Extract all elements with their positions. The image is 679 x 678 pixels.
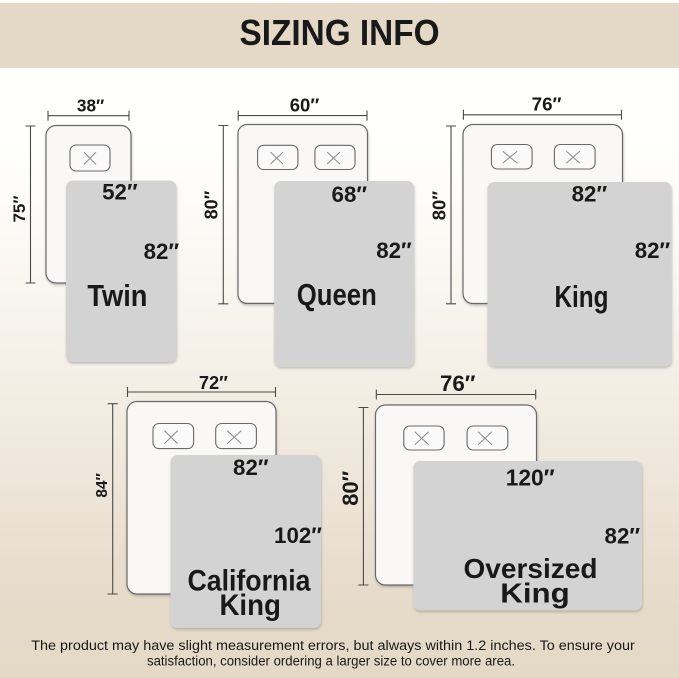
svg-text:84″: 84″	[94, 473, 111, 498]
svg-text:King: King	[555, 279, 609, 314]
svg-text:Queen: Queen	[297, 277, 377, 312]
svg-text:75″: 75″	[10, 195, 29, 222]
svg-text:72″: 72″	[199, 372, 228, 393]
svg-text:68″: 68″	[332, 182, 368, 207]
svg-text:SIZING INFO: SIZING INFO	[240, 12, 440, 53]
svg-text:82″: 82″	[572, 182, 608, 207]
svg-text:King: King	[500, 577, 570, 608]
svg-text:80″: 80″	[202, 190, 222, 219]
svg-text:satisfaction, consider orderin: satisfaction, consider ordering a larger…	[147, 653, 515, 669]
svg-text:82″: 82″	[144, 239, 180, 264]
svg-text:60″: 60″	[290, 95, 320, 116]
svg-text:82″: 82″	[605, 524, 641, 549]
svg-text:52″: 52″	[102, 180, 138, 205]
svg-text:80″: 80″	[338, 470, 363, 505]
svg-text:76″: 76″	[440, 371, 476, 396]
svg-text:King: King	[219, 589, 281, 622]
svg-text:The product may have slight me: The product may have slight measurement …	[31, 638, 635, 654]
svg-text:120″: 120″	[506, 464, 555, 490]
svg-text:Twin: Twin	[87, 278, 147, 313]
svg-text:82″: 82″	[635, 238, 671, 263]
svg-text:80″: 80″	[428, 191, 449, 220]
svg-text:76″: 76″	[532, 94, 562, 115]
svg-text:82″: 82″	[376, 238, 412, 263]
svg-text:102″: 102″	[274, 523, 322, 548]
svg-text:38″: 38″	[77, 96, 104, 116]
svg-text:82″: 82″	[233, 455, 269, 480]
